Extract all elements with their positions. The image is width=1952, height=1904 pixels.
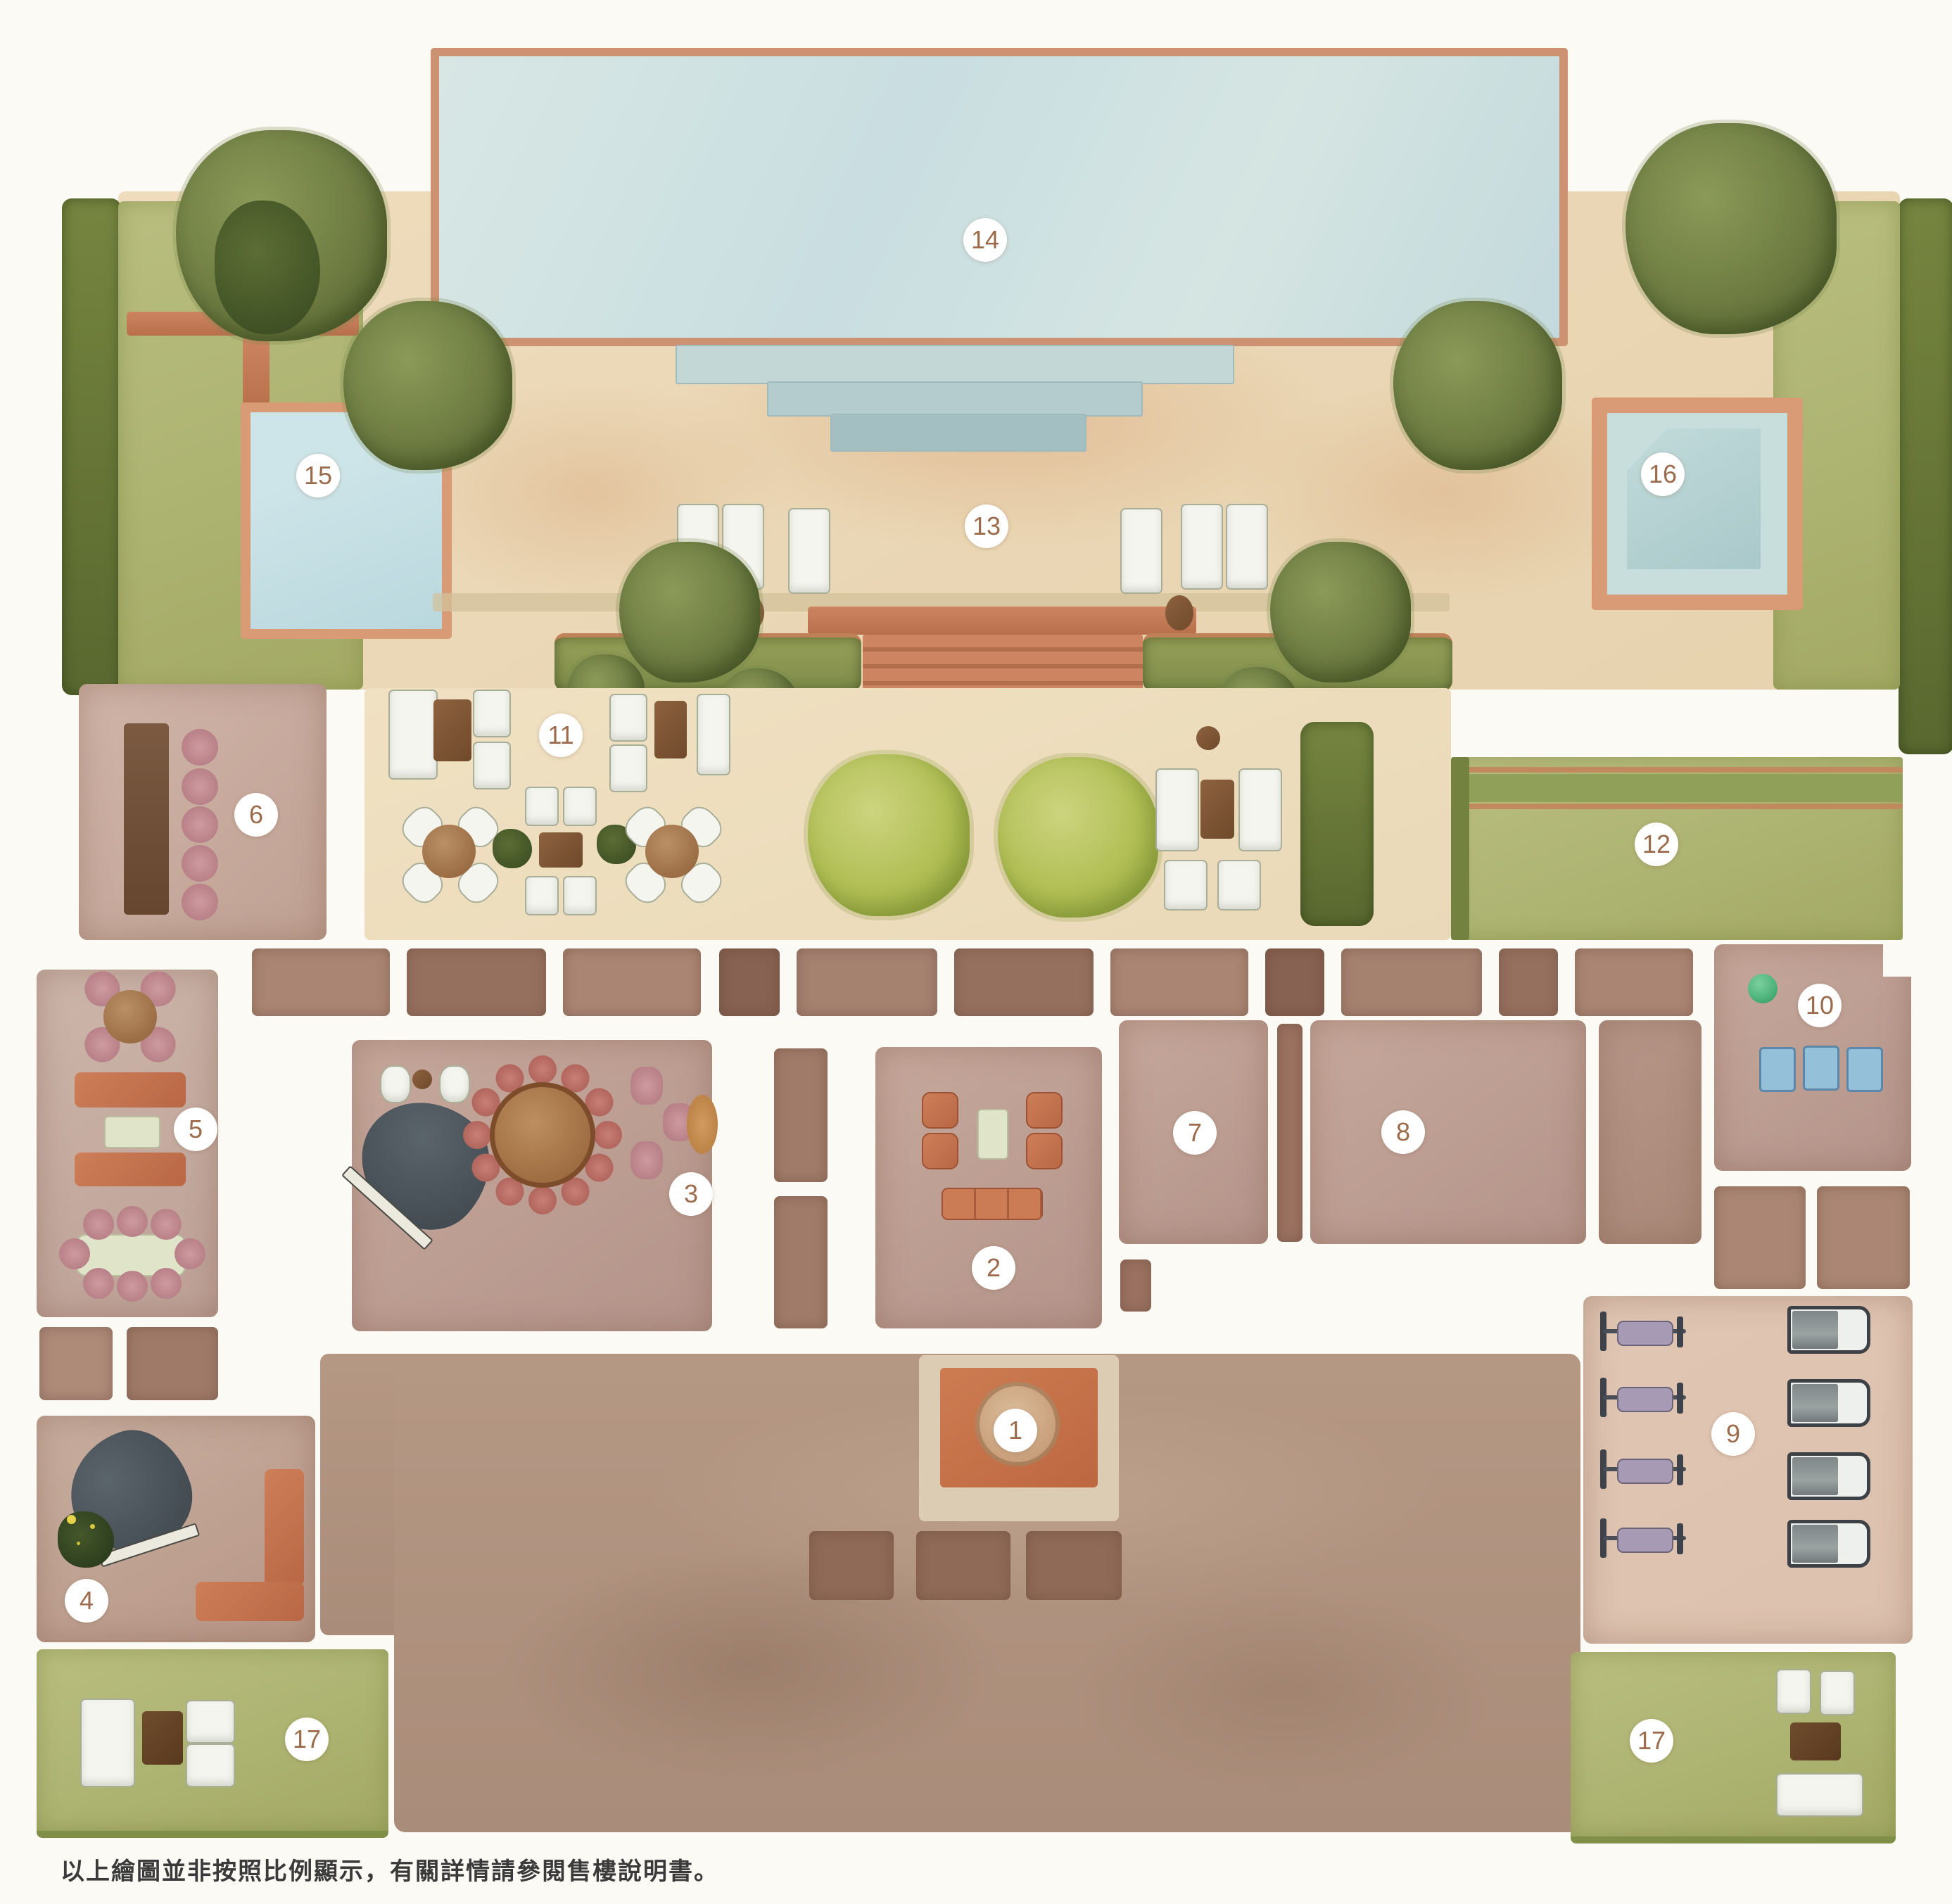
stool	[182, 729, 218, 766]
chair	[463, 1121, 491, 1149]
outdoor-chair	[609, 694, 647, 742]
potted-plant	[58, 1511, 114, 1568]
coffee-table	[433, 699, 471, 761]
area-marker-13: 13	[965, 504, 1008, 548]
chair	[83, 1268, 114, 1299]
sofa	[942, 1188, 1043, 1220]
weight-machine	[1596, 1376, 1701, 1420]
weight-machine	[1596, 1517, 1701, 1561]
chair	[117, 1271, 148, 1302]
room-block	[1817, 1186, 1910, 1289]
tree	[1625, 123, 1837, 334]
coffee-table	[977, 1109, 1008, 1160]
oval-table	[687, 1095, 718, 1154]
chair	[528, 1186, 557, 1214]
outdoor-sofa	[697, 694, 730, 775]
area-marker-5: 5	[174, 1108, 217, 1151]
area-marker-9: 9	[1711, 1412, 1755, 1456]
disclaimer-text: 以上繪圖並非按照比例顯示，有關詳情請參閱售樓說明書。	[61, 1852, 719, 1886]
tree	[808, 754, 970, 916]
chair	[117, 1206, 148, 1237]
treadmill-belt	[1792, 1311, 1838, 1349]
outdoor-sofa	[80, 1699, 135, 1787]
area-marker-15: 15	[296, 454, 340, 497]
lawn-stripe	[1468, 804, 1903, 809]
banquet-table-set	[476, 1068, 609, 1202]
area-marker-12: 12	[1635, 823, 1678, 866]
planter	[719, 948, 780, 1016]
outdoor-chair	[186, 1744, 235, 1787]
area-marker-14: 14	[963, 218, 1007, 262]
corridor-block	[1120, 1259, 1151, 1312]
coffee-table	[104, 1116, 160, 1148]
outdoor-chair	[1820, 1670, 1855, 1715]
tree	[1270, 542, 1411, 683]
armchair	[1026, 1133, 1063, 1169]
tree	[1393, 301, 1562, 470]
sofa	[75, 1153, 186, 1186]
area-marker-17: 17	[1630, 1719, 1673, 1763]
corridor-block	[774, 1196, 828, 1328]
spa-pool-right	[1592, 398, 1803, 610]
stair-landing	[808, 607, 1196, 635]
coffee-table	[654, 701, 687, 759]
outdoor-chair	[473, 690, 511, 737]
round-table	[422, 825, 476, 878]
chair	[594, 1121, 622, 1149]
area-marker-7: 7	[1173, 1111, 1217, 1155]
chair	[83, 1209, 114, 1240]
planter	[1265, 948, 1324, 1016]
round-table-set	[396, 799, 502, 904]
outdoor-chair	[609, 744, 647, 792]
outdoor-chair	[1164, 860, 1208, 910]
yoga-mat	[1759, 1047, 1796, 1092]
yoga-mat	[1846, 1047, 1883, 1092]
chair	[151, 1268, 182, 1299]
pool-cascade-step	[676, 345, 1234, 384]
side-table	[1165, 595, 1193, 630]
planter	[127, 1327, 218, 1400]
area-marker-2: 2	[972, 1246, 1015, 1290]
outdoor-chair	[186, 1700, 235, 1744]
outdoor-sofa	[1238, 768, 1282, 851]
exercise-ball	[1748, 974, 1777, 1003]
outdoor-sofa	[1155, 768, 1199, 851]
hedge-left-border	[62, 198, 121, 695]
shrub	[493, 829, 532, 868]
lounge-chair	[630, 1141, 663, 1179]
area-marker-6: 6	[234, 793, 278, 837]
area-marker-4: 4	[65, 1579, 108, 1623]
outdoor-chair	[563, 787, 597, 826]
central-steps	[863, 635, 1143, 690]
area-marker-11: 11	[539, 713, 583, 757]
flower	[67, 1515, 76, 1524]
planter	[1110, 948, 1248, 1016]
room-8	[1310, 1020, 1586, 1244]
round-table-set	[619, 799, 725, 904]
planter	[954, 948, 1094, 1016]
coffee-table	[1790, 1722, 1841, 1760]
tree	[998, 757, 1158, 918]
armchair	[922, 1133, 958, 1169]
treadmill-belt	[1792, 1457, 1838, 1495]
long-table	[124, 723, 169, 915]
coffee-table	[142, 1711, 183, 1765]
area-marker-1: 1	[994, 1409, 1037, 1452]
stool	[182, 845, 218, 882]
area-marker-16: 16	[1641, 452, 1685, 496]
l-shaped-sofa	[196, 1582, 304, 1621]
pool-cascade-step	[830, 414, 1086, 452]
area-marker-3: 3	[669, 1172, 713, 1216]
spa-pool-water	[1627, 429, 1761, 569]
chair	[59, 1238, 90, 1269]
coffee-table	[1200, 780, 1234, 839]
planter	[809, 1531, 894, 1600]
planter	[797, 948, 937, 1016]
treadmill	[1787, 1379, 1870, 1427]
round-banquet-table	[490, 1082, 595, 1188]
hedge-column	[1300, 722, 1374, 926]
sun-lounger	[788, 508, 830, 594]
chair	[528, 1055, 557, 1084]
stool	[182, 884, 218, 920]
tree	[619, 542, 760, 683]
treadmill	[1787, 1452, 1870, 1500]
chair	[151, 1209, 182, 1240]
weight-machine	[1596, 1310, 1701, 1354]
sun-lounger	[1120, 508, 1162, 594]
outdoor-chair	[563, 876, 597, 915]
room-10-notch	[1883, 944, 1911, 977]
lounge-chair	[630, 1067, 663, 1105]
corridor-block	[774, 1048, 828, 1182]
outdoor-chair	[473, 742, 511, 789]
round-table	[103, 990, 157, 1043]
planter	[39, 1327, 113, 1400]
area-marker-17: 17	[285, 1718, 329, 1761]
armchair	[922, 1092, 958, 1129]
site-plan: 以上繪圖並非按照比例顯示，有關詳情請參閱售樓說明書。 1234567891011…	[0, 0, 1952, 1904]
planter	[1341, 948, 1482, 1016]
side-table	[1196, 726, 1220, 750]
sofa	[75, 1072, 186, 1108]
lawn-edge	[1451, 757, 1469, 940]
outdoor-chair	[525, 876, 559, 915]
chair	[175, 1238, 205, 1269]
sun-lounger	[1226, 504, 1268, 590]
planter	[916, 1531, 1010, 1600]
planter	[1499, 948, 1558, 1016]
area-marker-10: 10	[1798, 984, 1842, 1027]
planter	[407, 948, 546, 1016]
armchair	[1026, 1092, 1063, 1129]
planter	[1575, 948, 1693, 1016]
stool	[182, 806, 218, 843]
l-shaped-sofa	[265, 1469, 304, 1586]
lawn-stripe	[1468, 774, 1903, 802]
outdoor-chair	[525, 787, 559, 826]
planter	[1026, 1531, 1122, 1600]
square-table	[539, 832, 583, 868]
stool	[182, 768, 218, 805]
treadmill	[1787, 1520, 1870, 1568]
pool-cascade-step	[767, 381, 1143, 417]
yoga-mat	[1803, 1046, 1839, 1091]
room-8b	[1599, 1020, 1701, 1244]
lawn-stripe	[1468, 767, 1903, 773]
outdoor-sofa	[1776, 1773, 1863, 1817]
planter	[252, 948, 390, 1016]
round-table	[645, 825, 699, 878]
sun-lounger	[1181, 504, 1223, 590]
treadmill	[1787, 1306, 1870, 1354]
weight-machine	[1596, 1448, 1701, 1492]
area-marker-8: 8	[1381, 1110, 1425, 1154]
card-table-set	[77, 964, 183, 1070]
outdoor-sofa	[388, 690, 438, 780]
treadmill-belt	[1792, 1525, 1838, 1563]
corridor-block	[1277, 1024, 1303, 1242]
terracotta-path	[243, 336, 270, 409]
outdoor-chair	[1776, 1669, 1811, 1714]
room-block	[1714, 1186, 1806, 1289]
tree	[343, 301, 512, 470]
treadmill-belt	[1792, 1384, 1838, 1422]
planter	[563, 948, 701, 1016]
outdoor-chair	[1217, 860, 1261, 910]
main-pool	[431, 48, 1568, 346]
hedge-right-border	[1899, 198, 1952, 754]
